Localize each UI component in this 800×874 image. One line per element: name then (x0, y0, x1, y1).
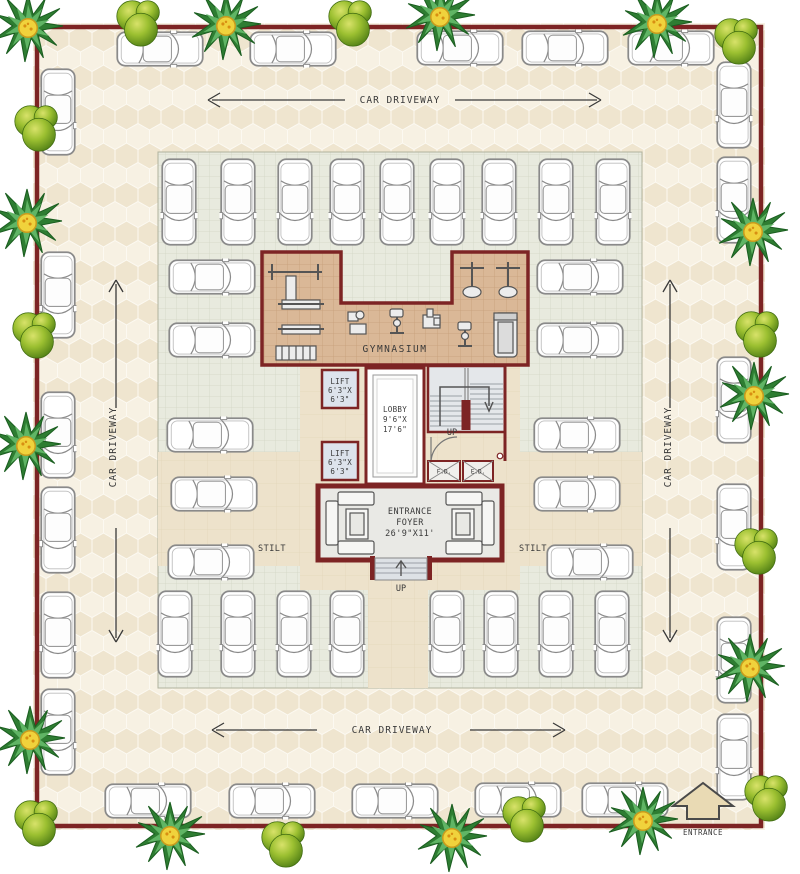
foyer-seating-left (326, 492, 374, 554)
stilt-label-right: STILT (519, 544, 547, 554)
round-tree-icon (15, 801, 58, 846)
car-icon (480, 159, 518, 244)
car-icon (156, 591, 194, 676)
round-tree-icon (15, 106, 58, 151)
foyer-seating-right (446, 492, 494, 554)
car-icon (547, 543, 632, 581)
lift-lower-dim1: 6'3"X (328, 458, 352, 467)
car-icon (537, 591, 575, 676)
car-icon (219, 159, 257, 244)
floor-plan: GYMNASIUM LIFT 6'3"X 6'3" LIFT 6'3"X 6'3… (0, 0, 800, 874)
duct-left-label: F.D. (437, 469, 451, 476)
car-icon (593, 591, 631, 676)
gymnasium-label: GYMNASIUM (363, 344, 428, 355)
car-icon (275, 591, 313, 676)
lobby-dim1: 9'6"X (383, 415, 407, 424)
steps-up-label: UP (396, 584, 406, 594)
lobby-label: LOBBY (383, 405, 407, 414)
foyer-dim: 26'9"X11' (385, 529, 435, 539)
car-icon (328, 159, 366, 244)
car-icon (594, 159, 632, 244)
lift-upper-dim2: 6'3" (330, 395, 349, 404)
car-icon (428, 591, 466, 676)
driveway-label-right: CAR DRIVEWAY (663, 407, 674, 488)
duct-right-label: E.D. (471, 469, 485, 476)
lift-upper-dim1: 6'3"X (328, 386, 352, 395)
car-icon (229, 782, 314, 820)
car-icon (39, 487, 77, 572)
car-icon (219, 591, 257, 676)
car-icon (167, 416, 252, 454)
car-icon (428, 159, 466, 244)
car-icon (537, 159, 575, 244)
entrance-label: ENTRANCE (683, 828, 723, 837)
car-icon (715, 62, 753, 147)
round-tree-icon (13, 313, 56, 358)
stair-newel (462, 400, 471, 430)
car-icon (160, 159, 198, 244)
lift-upper-label: LIFT (330, 377, 349, 386)
car-icon (537, 321, 622, 359)
car-icon (534, 475, 619, 513)
car-icon (522, 29, 607, 67)
car-icon (250, 30, 335, 68)
lobby-dim2: 17'6" (383, 425, 407, 434)
lift-lower-dim2: 6'3" (330, 467, 349, 476)
car-icon (417, 29, 502, 67)
car-icon (105, 782, 190, 820)
car-icon (378, 159, 416, 244)
floor-plan-canvas: GYMNASIUM LIFT 6'3"X 6'3" LIFT 6'3"X 6'3… (0, 0, 800, 874)
driveway-label-top: CAR DRIVEWAY (360, 95, 441, 106)
car-icon (168, 543, 253, 581)
driveway-label-bottom: CAR DRIVEWAY (352, 725, 433, 736)
car-icon (482, 591, 520, 676)
driveway-label-left: CAR DRIVEWAY (108, 407, 119, 488)
car-icon (534, 416, 619, 454)
car-icon (328, 591, 366, 676)
round-tree-icon (262, 822, 305, 867)
car-icon (537, 258, 622, 296)
lift-lower-label: LIFT (330, 449, 349, 458)
foyer-label1: ENTRANCE (388, 507, 432, 517)
car-icon (276, 159, 314, 244)
foyer-label2: FOYER (396, 518, 424, 528)
car-icon (169, 321, 254, 359)
car-icon (171, 475, 256, 513)
stilt-label-left: STILT (258, 544, 286, 554)
round-tree-icon (503, 797, 546, 842)
entrance-foyer: ENTRANCE FOYER 26'9"X11' (318, 486, 502, 560)
car-icon (39, 592, 77, 677)
car-icon (169, 258, 254, 296)
car-icon (352, 782, 437, 820)
